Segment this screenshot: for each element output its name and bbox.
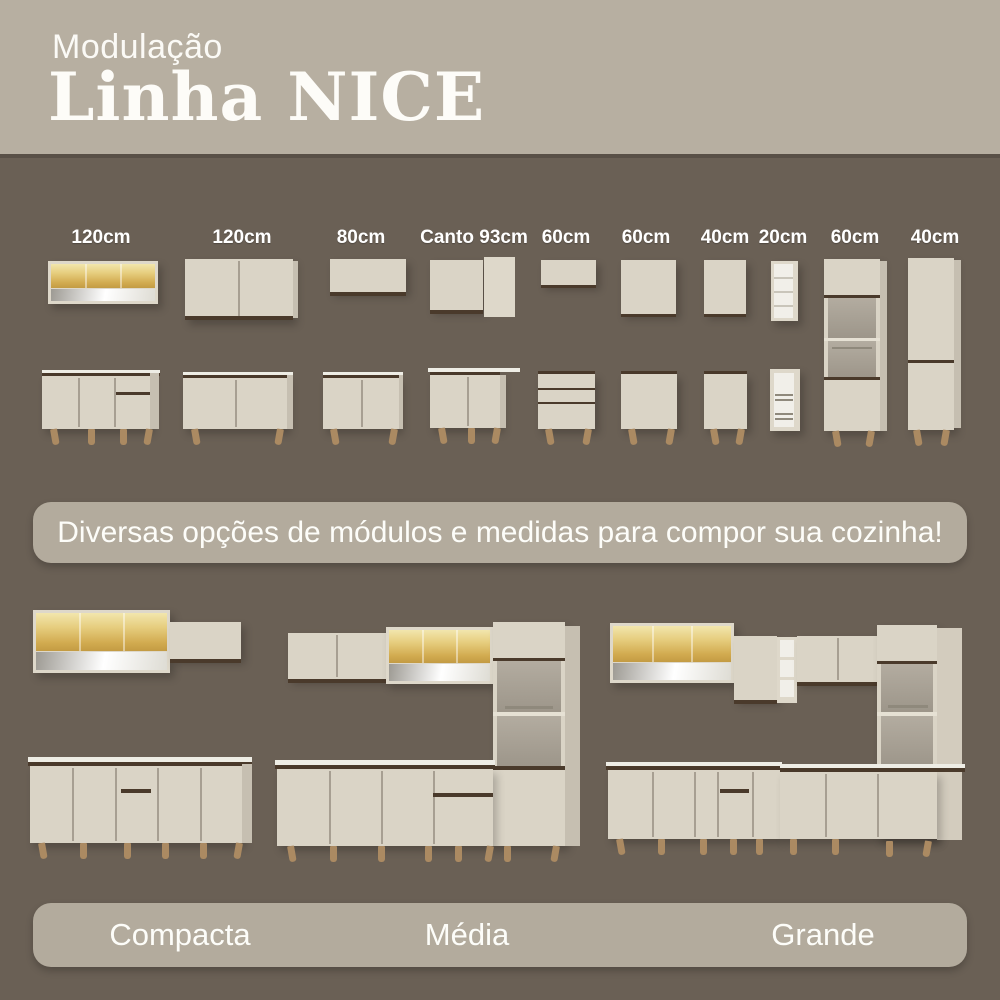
leg [730, 839, 737, 855]
cabinet-body [621, 260, 676, 314]
info-banner-text: Diversas opções de módulos e medidas par… [57, 516, 942, 550]
shelf-niche [780, 640, 794, 657]
door-divider [837, 638, 839, 680]
shelf-niche [780, 680, 794, 697]
leg [455, 846, 462, 862]
cabinet-body [430, 375, 500, 428]
door-divider [877, 774, 879, 837]
drawer-trim [720, 789, 749, 793]
leg [940, 429, 950, 446]
door-divider [329, 771, 331, 844]
open-niche [881, 716, 933, 766]
door-divider [825, 774, 827, 837]
glass-door-divider [652, 626, 654, 662]
wood-trim [541, 285, 596, 288]
module-size-label: 40cm [895, 227, 975, 249]
page-title: Linha NICE [48, 58, 485, 136]
cabinet-body [704, 374, 747, 429]
header: Modulação Linha NICE [0, 0, 1000, 154]
wood-trim [185, 316, 293, 320]
leg [756, 839, 763, 855]
glass-door-divider [120, 264, 122, 288]
leg [628, 428, 638, 445]
cabinet-side [242, 764, 252, 843]
door-divider [200, 768, 202, 841]
glass-doors [36, 613, 167, 651]
leg [913, 429, 923, 446]
door-divider [157, 768, 159, 841]
leg [438, 427, 448, 444]
wood-trim [908, 360, 954, 363]
corner-side-panel [484, 257, 515, 317]
glass-door-divider [123, 613, 125, 651]
leg [468, 428, 475, 444]
door-divider [78, 378, 80, 427]
leg [710, 428, 720, 445]
cabinet-body [621, 374, 677, 429]
cabinet-side [880, 261, 887, 431]
wire-rack [775, 413, 793, 415]
door-divider [72, 768, 74, 841]
drawer-trim [433, 793, 493, 797]
shelf-niche [780, 660, 794, 677]
door-divider [238, 261, 240, 316]
hanging-rod [505, 706, 553, 709]
leg [425, 846, 432, 862]
kitchen-label-grande: Grande [771, 917, 874, 953]
leg [38, 842, 48, 859]
wood-trim [330, 292, 406, 296]
leg [287, 845, 297, 862]
glass-doors [51, 264, 155, 288]
wall-cabinet [170, 622, 241, 659]
base-cabinet-body [30, 766, 242, 843]
glass-door-divider [691, 626, 693, 662]
wire-rack [775, 394, 793, 396]
corner-wall-cabinet [734, 636, 777, 700]
leg [550, 845, 560, 862]
module-size-label: Canto 93cm [414, 227, 534, 249]
kitchen-label-compacta: Compacta [109, 917, 250, 953]
drawer-trim [538, 388, 595, 390]
header-divider [0, 154, 1000, 158]
leg [330, 846, 337, 862]
cabinet-body [541, 260, 596, 285]
open-niche [497, 716, 561, 766]
door-divider [115, 768, 117, 841]
glass-door-divider [79, 613, 81, 651]
leg [735, 428, 745, 445]
leg [922, 840, 932, 857]
shelf [774, 305, 793, 307]
module-size-label: 120cm [41, 227, 161, 249]
leg [124, 843, 131, 859]
door-divider [467, 377, 469, 426]
wood-trim [493, 766, 565, 770]
door-divider [235, 380, 237, 427]
door-divider [433, 771, 435, 844]
wood-trim [288, 679, 386, 683]
leg [491, 427, 501, 444]
open-shelf [51, 289, 155, 301]
cabinet-body [704, 260, 746, 314]
promo-image: Modulação Linha NICE 120cm 120cm 80cm Ca… [0, 0, 1000, 1000]
wood-trim [704, 314, 746, 317]
open-shelf [36, 652, 167, 670]
leg [274, 428, 284, 445]
leg [886, 841, 893, 857]
open-shelf [613, 663, 731, 680]
microwave-niche [828, 298, 876, 338]
hanging-rod [832, 347, 872, 349]
cabinet-body [42, 376, 150, 429]
microwave-niche [497, 661, 561, 712]
wood-trim [824, 377, 880, 380]
leg [665, 428, 675, 445]
leg [388, 428, 398, 445]
leg [200, 843, 207, 859]
cabinet-side [500, 375, 506, 428]
cabinet-body [908, 258, 954, 430]
kitchen-label-media: Média [425, 917, 509, 953]
module-size-label: 60cm [526, 227, 606, 249]
wire-rack [775, 399, 793, 401]
glass-door-divider [456, 630, 458, 663]
leg [832, 839, 839, 855]
leg [504, 846, 511, 862]
door-divider [694, 772, 696, 837]
glass-doors [613, 626, 731, 662]
wood-trim [734, 700, 777, 704]
leg [484, 845, 494, 862]
cabinet-side [150, 373, 159, 429]
leg [616, 838, 626, 855]
module-size-label: 80cm [301, 227, 421, 249]
leg [88, 429, 95, 445]
cabinet-side [954, 260, 961, 428]
wire-rack [775, 418, 793, 420]
base-cabinet-body [277, 769, 493, 846]
leg [330, 428, 340, 445]
glass-door-divider [422, 630, 424, 663]
door-divider [361, 380, 363, 427]
door-divider [652, 772, 654, 837]
leg [582, 428, 592, 445]
shelf [774, 291, 793, 293]
cabinet-side [399, 375, 403, 429]
cabinet-side [287, 375, 293, 429]
cabinet-side [937, 628, 962, 840]
leg [832, 430, 842, 447]
leg [378, 846, 385, 862]
leg [143, 428, 153, 445]
wood-trim [430, 310, 483, 314]
open-shelf [389, 664, 490, 681]
info-banner: Diversas opções de módulos e medidas par… [33, 502, 967, 563]
door-divider [752, 772, 754, 837]
leg [865, 430, 875, 447]
door-divider [336, 635, 338, 677]
cabinet-body [330, 259, 406, 292]
drawer-trim [121, 789, 151, 793]
cabinet-side [565, 626, 580, 846]
leg [545, 428, 555, 445]
leg [790, 839, 797, 855]
module-size-label: 60cm [606, 227, 686, 249]
wood-trim [170, 659, 241, 663]
wood-trim [621, 314, 676, 317]
corner-door [430, 260, 483, 310]
door-divider [717, 772, 719, 837]
cabinet-side [293, 261, 298, 318]
wood-trim [797, 682, 877, 686]
leg [191, 428, 201, 445]
glass-doors [389, 630, 490, 663]
leg [233, 842, 243, 859]
leg [120, 429, 127, 445]
drawer-trim [116, 392, 150, 395]
size-options-banner: Compacta Média Grande [33, 903, 967, 967]
module-size-label: 20cm [743, 227, 823, 249]
module-size-label: 60cm [815, 227, 895, 249]
glass-door-divider [85, 264, 87, 288]
module-size-label: 120cm [182, 227, 302, 249]
leg [162, 843, 169, 859]
leg [658, 839, 665, 855]
door-divider [114, 378, 116, 427]
hanging-rod [888, 705, 928, 708]
door-divider [381, 771, 383, 844]
leg [80, 843, 87, 859]
shelf [774, 277, 793, 279]
drawer-trim [538, 402, 595, 404]
leg [700, 839, 707, 855]
base-cabinet-body [780, 772, 937, 839]
leg [50, 428, 60, 445]
